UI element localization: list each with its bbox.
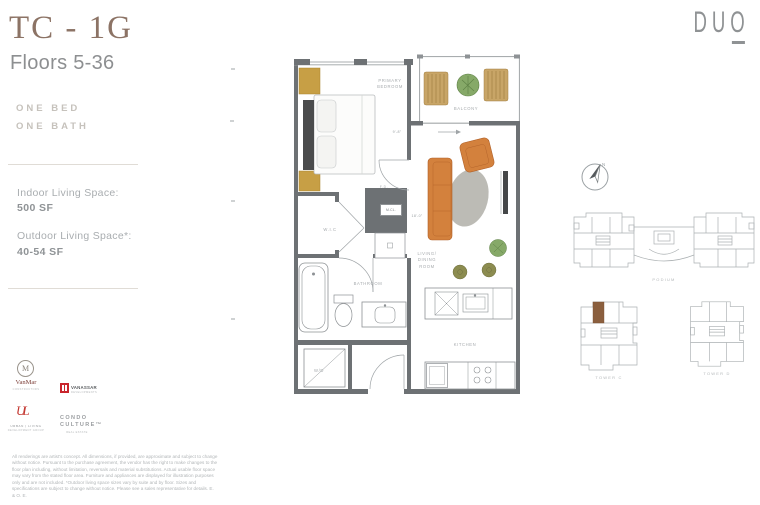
outdoor-space-value: 40-54 SF xyxy=(17,246,63,258)
highlighted-unit xyxy=(593,302,604,323)
vanassar-logo-sub: DEVELOPMENTS xyxy=(71,391,97,394)
feature-one-bath: ONE BATH xyxy=(16,121,89,132)
label-wic: W.I.C xyxy=(317,227,343,233)
kitchen-fixtures xyxy=(425,288,515,389)
vanmar-logo-sub: CONSTRUCTORS xyxy=(7,388,45,391)
label-balcony: BALCONY xyxy=(446,106,486,112)
unit-code-title: TC - 1G xyxy=(9,10,133,47)
label-primary-bedroom: PRIMARY BEDROOM xyxy=(371,78,409,91)
condo-culture-line2: CULTURE™ xyxy=(60,422,103,428)
vanmar-logo-icon: M xyxy=(17,360,34,377)
keyplan-podium-label: PODIUM xyxy=(629,277,699,282)
condo-culture-logo: CONDO CULTURE™ xyxy=(60,415,94,430)
keyplan-tower-right-label: TOWER D xyxy=(691,371,743,376)
floorplan-sheet: TC - 1G Floors 5-36 ONE BED ONE BATH Ind… xyxy=(0,0,760,505)
outdoor-space-label: Outdoor Living Space*: xyxy=(17,230,132,242)
urban-living-logo-name: URBAN | LIVING xyxy=(4,424,48,428)
label-living-dining: LIVING/ DINING ROOM xyxy=(413,251,441,270)
compass-north-label: N xyxy=(602,162,605,167)
dimension-tick xyxy=(231,68,235,70)
indoor-space-value: 500 SF xyxy=(17,202,53,214)
label-bathroom: BATHROOM xyxy=(348,281,388,287)
balcony-furniture xyxy=(424,69,508,105)
dimension-tick xyxy=(231,318,235,320)
duo-logo: DUO xyxy=(694,8,750,44)
condo-culture-sub: REAL ESTATE xyxy=(60,431,94,434)
dimension-tick xyxy=(230,120,234,122)
feature-one-bed: ONE BED xyxy=(16,103,80,114)
disclaimer-text: All renderings are artist's concept. All… xyxy=(12,454,218,499)
divider-top xyxy=(8,164,138,165)
vanassar-logo-icon xyxy=(60,383,69,393)
floors-subtitle: Floors 5-36 xyxy=(10,52,114,75)
condo-culture-line1: CONDO xyxy=(60,415,87,421)
keyplan-tower-left xyxy=(577,299,641,373)
duo-logo-underline xyxy=(732,41,745,44)
divider-bottom xyxy=(8,288,138,289)
dimension-living: 18'-0" xyxy=(403,214,431,218)
keyplan-tower-left-label: TOWER C xyxy=(583,375,635,380)
label-kitchen: KITCHEN xyxy=(447,342,483,348)
vanassar-logo-name: VANASSAR xyxy=(71,385,97,390)
duo-logo-text: DUO xyxy=(694,8,750,38)
label-wd: W/D xyxy=(307,368,331,374)
keyplan-podium xyxy=(571,205,757,277)
compass-icon: N xyxy=(578,156,620,202)
dimension-bedroom: 9'-8" xyxy=(384,130,410,134)
vanmar-logo-name: VanMar xyxy=(7,379,45,386)
indoor-space-label: Indoor Living Space: xyxy=(17,187,119,199)
bedroom-furniture xyxy=(299,68,375,191)
label-mcl: M.CL. xyxy=(380,204,402,216)
urban-living-logo-icon: UL xyxy=(16,403,27,419)
urban-living-logo-sub: DEVELOPMENT GROUP xyxy=(4,429,48,432)
label-fd: F.D. xyxy=(374,185,394,190)
dimension-tick xyxy=(231,200,235,202)
keyplan-tower-right xyxy=(685,299,749,369)
